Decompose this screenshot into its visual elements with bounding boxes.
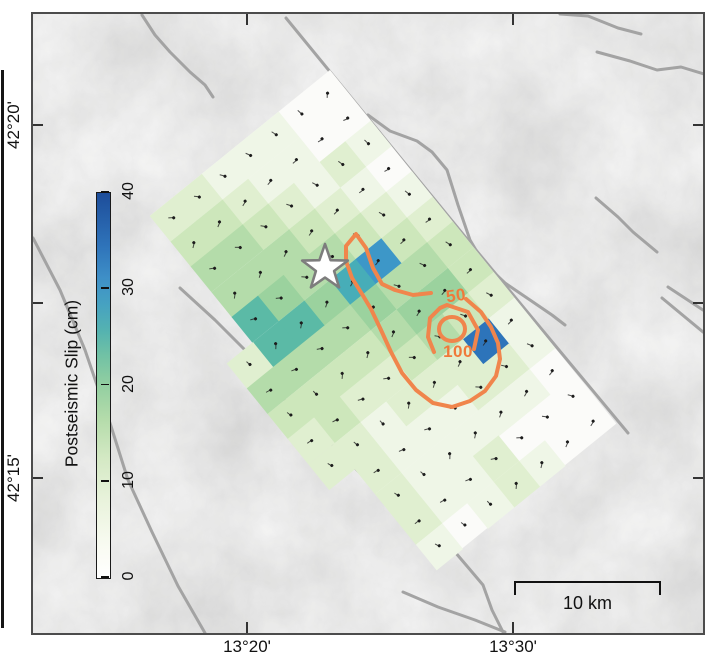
colorbar-gradient <box>96 192 111 579</box>
lon-label-13-30: 13°30' <box>473 637 553 657</box>
data-point-tail <box>235 247 240 248</box>
colorbar-tick <box>101 576 109 578</box>
colorbar-title: Postseismic Slip (cm) <box>62 269 83 499</box>
scalebar-right-end <box>659 581 661 595</box>
lon-label-13-20: 13°20' <box>207 637 287 657</box>
colorbar-tick <box>101 480 109 482</box>
map-panel: 50 100 010203040 Postseismic Slip (cm) 1… <box>31 12 705 635</box>
lat-label-42-20: 42°20' <box>4 85 24 165</box>
axis-tick <box>33 302 43 304</box>
lat-label-42-15: 42°15' <box>4 438 24 518</box>
axis-tick <box>246 14 248 25</box>
colorbar-tick <box>101 384 109 386</box>
axis-tick <box>512 622 514 633</box>
colorbar-tick <box>101 287 109 289</box>
axis-tick <box>33 124 43 126</box>
scalebar-line <box>514 581 661 583</box>
colorbar-tick <box>101 191 109 193</box>
axis-tick <box>512 14 514 25</box>
colorbar-tick-label: 30 <box>120 267 138 307</box>
figure-postseismic-slip-map: 50 100 010203040 Postseismic Slip (cm) 1… <box>0 0 720 658</box>
data-point-tail <box>409 357 414 358</box>
contour-label-100: 100 <box>443 342 473 362</box>
data-point-tail <box>449 454 450 459</box>
colorbar-tick-label: 0 <box>120 556 138 596</box>
colorbar-tick-label: 20 <box>120 364 138 404</box>
scalebar-label: 10 km <box>538 593 638 614</box>
axis-tick <box>693 302 703 304</box>
colorbar-tick-label: 10 <box>120 460 138 500</box>
axis-tick <box>33 477 43 479</box>
colorbar-tick-label: 40 <box>120 171 138 211</box>
contour-label-50: 50 <box>445 285 468 308</box>
axis-tick <box>693 477 703 479</box>
axis-tick <box>693 124 703 126</box>
data-point-tail <box>275 344 276 349</box>
axis-tick <box>246 622 248 633</box>
scalebar-left-end <box>514 581 516 595</box>
